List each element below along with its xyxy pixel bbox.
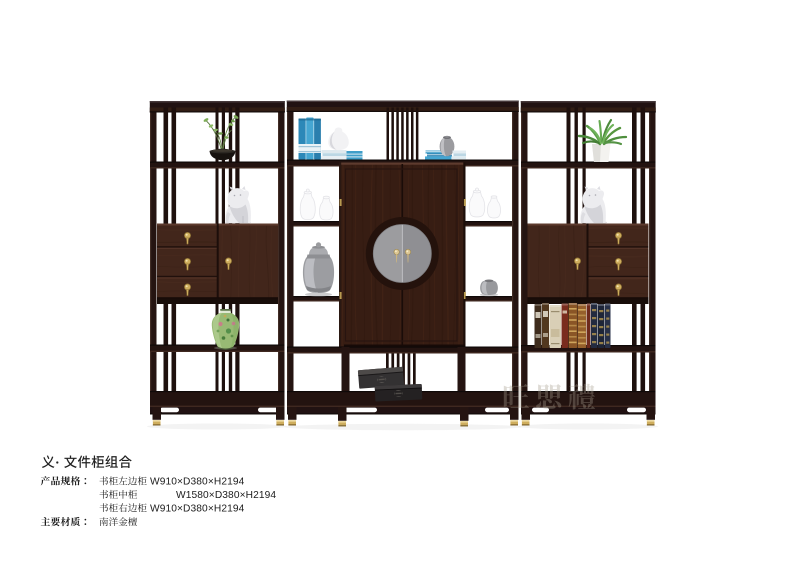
svg-text:W910×D380×H2194: W910×D380×H2194 (150, 503, 245, 514)
svg-text:W1580×D380×H2194: W1580×D380×H2194 (176, 490, 276, 501)
svg-text:W910×D380×H2194: W910×D380×H2194 (150, 477, 245, 488)
